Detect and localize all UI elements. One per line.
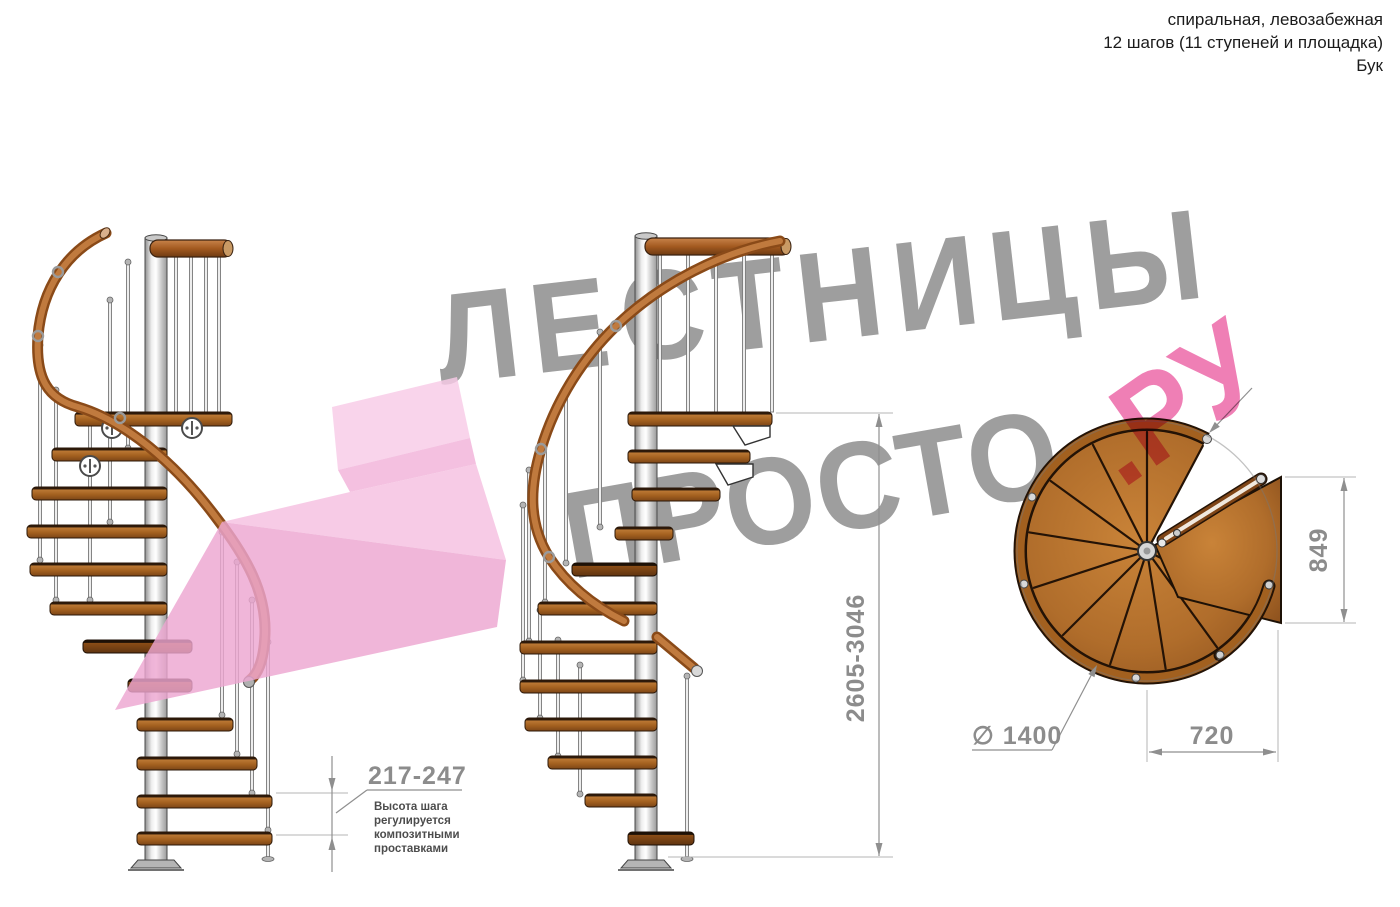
step [32,487,167,500]
step-height-value: 217-247 [368,762,467,790]
step-height-note-line1: Высота шага [374,801,448,813]
diameter-leaders [1209,388,1252,433]
step [525,718,657,731]
step [30,563,167,576]
central-pole [618,233,674,870]
step [520,641,657,654]
step [137,832,272,845]
dimension-total-height: 2605-3046 [776,413,893,856]
side-view-middle [520,233,893,870]
platform-board [628,412,772,426]
dimension-diameter: ∅ 1400 [972,665,1097,750]
step [628,832,694,845]
staircase-drawing: 217-247 Высота шага регулируется компози… [0,0,1400,907]
top-view [1017,388,1281,682]
platform-depth-value: 720 [1190,722,1235,750]
diameter-value: ∅ 1400 [972,722,1062,750]
step [520,680,657,693]
step [628,450,750,463]
step [585,794,657,807]
step [137,757,257,770]
step-height-note-line4: проставками [374,843,448,855]
step [137,795,272,808]
step [548,756,657,769]
dimension-platform-width: 849 [1285,477,1356,623]
step [27,525,167,538]
platform-width-value: 849 [1305,528,1333,573]
drawing-page: ЛЕСТНИЦЫ ПРОСТО [0,0,1400,907]
watermark-arrow [115,377,506,710]
step [137,718,233,731]
step [615,527,673,540]
top-handrail [150,240,233,257]
step [50,602,167,615]
step [632,488,720,501]
dimension-step-height: 217-247 Высота шага регулируется компози… [276,756,467,872]
step-height-note-line2: регулируется [374,815,451,827]
step [572,563,657,576]
step-height-note-line3: композитными [374,829,460,841]
total-height-value: 2605-3046 [842,594,870,723]
